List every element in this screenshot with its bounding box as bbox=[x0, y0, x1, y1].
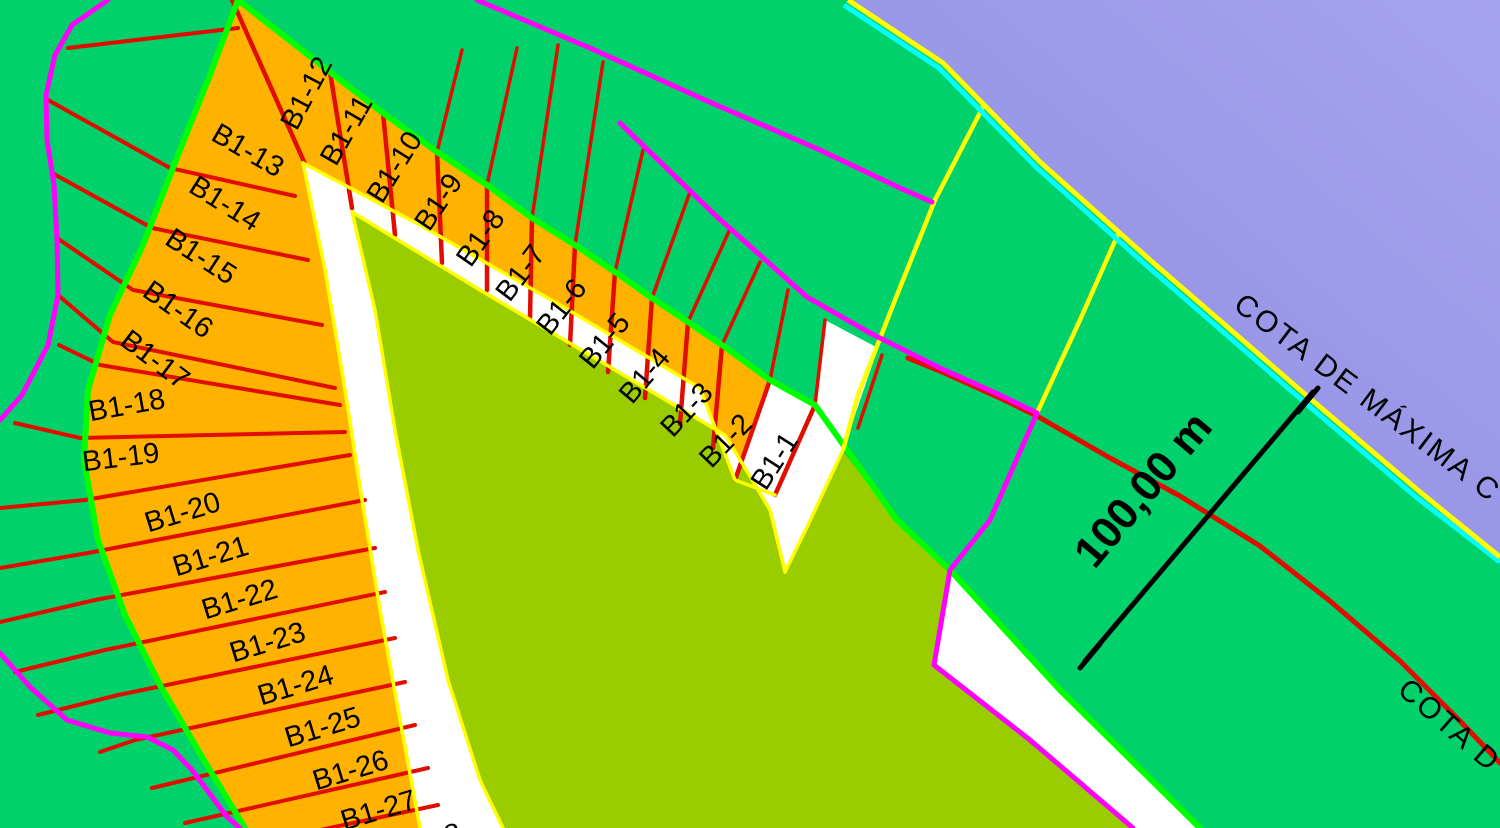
cadastral-plan-svg: 100,00 m COTA DE MÁXIMA C COTA D B1-1B1-… bbox=[0, 0, 1500, 828]
plan-canvas: 100,00 m COTA DE MÁXIMA C COTA D B1-1B1-… bbox=[0, 0, 1500, 828]
